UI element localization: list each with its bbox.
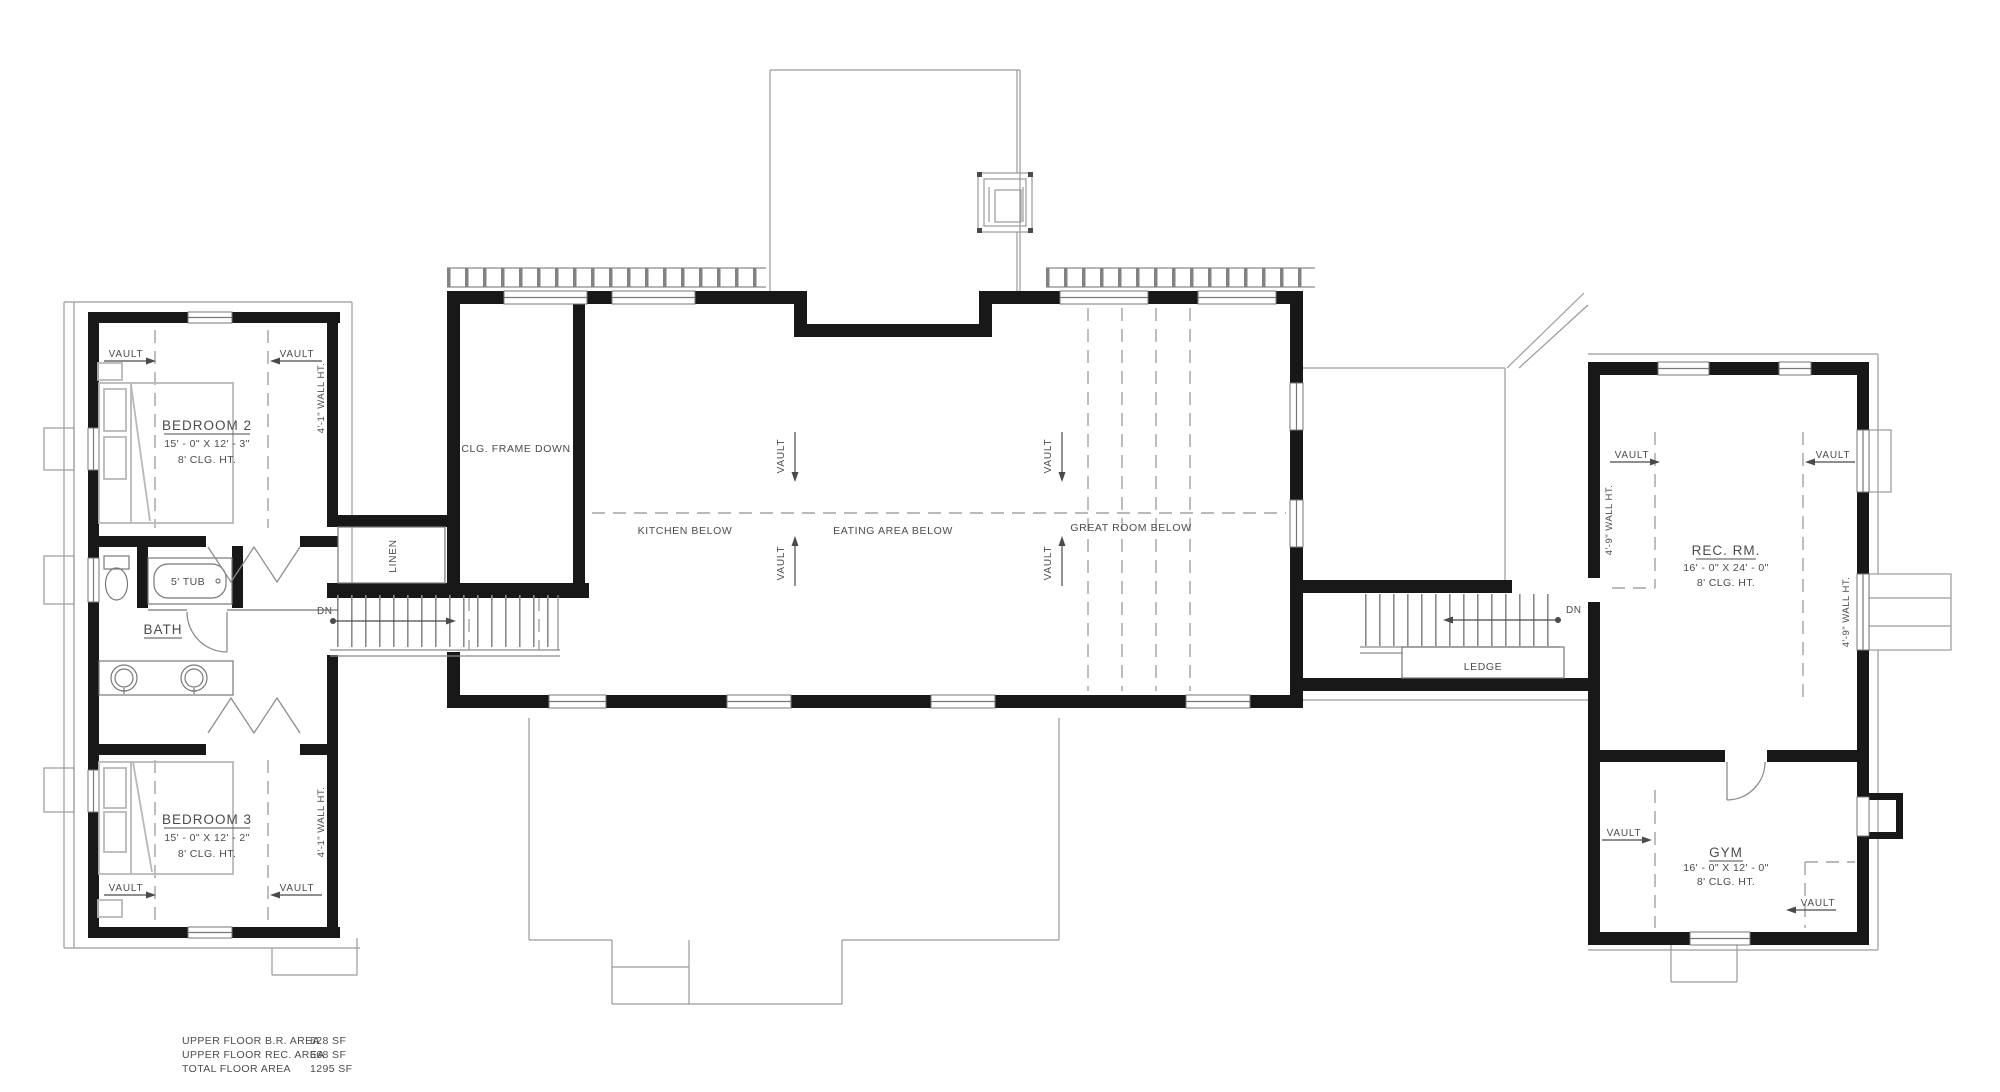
kitchen-below-label: KITCHEN BELOW: [638, 525, 733, 537]
bedroom2-name: BEDROOM 2: [162, 418, 252, 433]
area-table: UPPER FLOOR B.R. AREA 628 SF UPPER FLOOR…: [182, 1035, 353, 1075]
bed-bedroom2: [99, 383, 233, 523]
vault-label: VAULT: [1801, 898, 1836, 909]
rec-room-ceiling: 8' CLG. HT.: [1697, 577, 1755, 589]
vault-label: VAULT: [109, 883, 144, 894]
vault-label: VAULT: [1615, 450, 1650, 461]
area-table-label: UPPER FLOOR B.R. AREA: [182, 1035, 320, 1047]
linen-label: LINEN: [388, 539, 399, 572]
bedroom3-name: BEDROOM 3: [162, 812, 252, 827]
area-table-value: 668 SF: [310, 1049, 346, 1061]
dn-label: DN: [1566, 605, 1581, 616]
vault-label: VAULT: [280, 883, 315, 894]
bath-name: BATH: [143, 622, 182, 637]
vault-label: VAULT: [109, 349, 144, 360]
walls: [88, 291, 1903, 945]
wall-height-label: 4'-9" WALL HT.: [1604, 485, 1615, 556]
area-table-value: 1295 SF: [310, 1063, 353, 1075]
clg-frame-down-label: CLG. FRAME DOWN: [461, 443, 570, 455]
tub-label: 5' TUB: [171, 576, 205, 588]
bedroom3-doors: [208, 698, 300, 733]
floor-plan-drawing: BEDROOM 2 15' - 0" X 12' - 3" 8' CLG. HT…: [0, 0, 2000, 1092]
bath-door-swing: [187, 612, 227, 652]
nightstand: [98, 900, 122, 917]
gym-dims: 16' - 0" X 12' - 0": [1683, 862, 1769, 874]
bedroom3-dims: 15' - 0" X 12' - 2": [164, 832, 250, 844]
vault-label: VAULT: [1043, 546, 1054, 581]
area-table-value: 628 SF: [310, 1035, 346, 1047]
rec-room-name: REC. RM.: [1692, 543, 1761, 558]
ledge-label: LEDGE: [1464, 661, 1503, 673]
vault-label: VAULT: [776, 439, 787, 474]
bedroom3-ceiling: 8' CLG. HT.: [178, 848, 236, 860]
vault-label: VAULT: [1816, 450, 1851, 461]
vault-label: VAULT: [1043, 439, 1054, 474]
bedroom2-ceiling: 8' CLG. HT.: [178, 454, 236, 466]
area-table-label: UPPER FLOOR REC. AREA: [182, 1049, 325, 1061]
vault-label: VAULT: [280, 349, 315, 360]
bedroom2-doors: [208, 547, 300, 582]
chimney: [977, 172, 1033, 233]
dn-label: DN: [317, 606, 332, 617]
floor-plan-page: BEDROOM 2 15' - 0" X 12' - 3" 8' CLG. HT…: [0, 0, 2000, 1092]
vault-label: VAULT: [776, 546, 787, 581]
bedroom2-dims: 15' - 0" X 12' - 3": [164, 438, 250, 450]
rec-room-dims: 16' - 0" X 24' - 0": [1683, 562, 1769, 574]
vanity: [99, 661, 233, 695]
great-room-below-label: GREAT ROOM BELOW: [1070, 522, 1191, 534]
windows: [88, 291, 1869, 945]
stairs-right: [1360, 620, 1564, 678]
wall-height-label: 4'-9" WALL HT.: [1841, 577, 1852, 648]
vault-label: VAULT: [1607, 828, 1642, 839]
nightstand: [98, 363, 122, 380]
gym-door-swing: [1727, 762, 1765, 800]
wall-height-label: 4'-1" WALL HT.: [316, 363, 327, 434]
gym-name: GYM: [1709, 845, 1743, 860]
bracket-bands: [447, 268, 1315, 287]
stairs-left: [330, 595, 560, 656]
area-table-label: TOTAL FLOOR AREA: [182, 1063, 291, 1075]
gym-ceiling: 8' CLG. HT.: [1697, 876, 1755, 888]
wall-height-label: 4'-1" WALL HT.: [316, 787, 327, 858]
eating-area-below-label: EATING AREA BELOW: [833, 525, 953, 537]
furniture: [98, 363, 445, 917]
toilet: [104, 556, 129, 600]
